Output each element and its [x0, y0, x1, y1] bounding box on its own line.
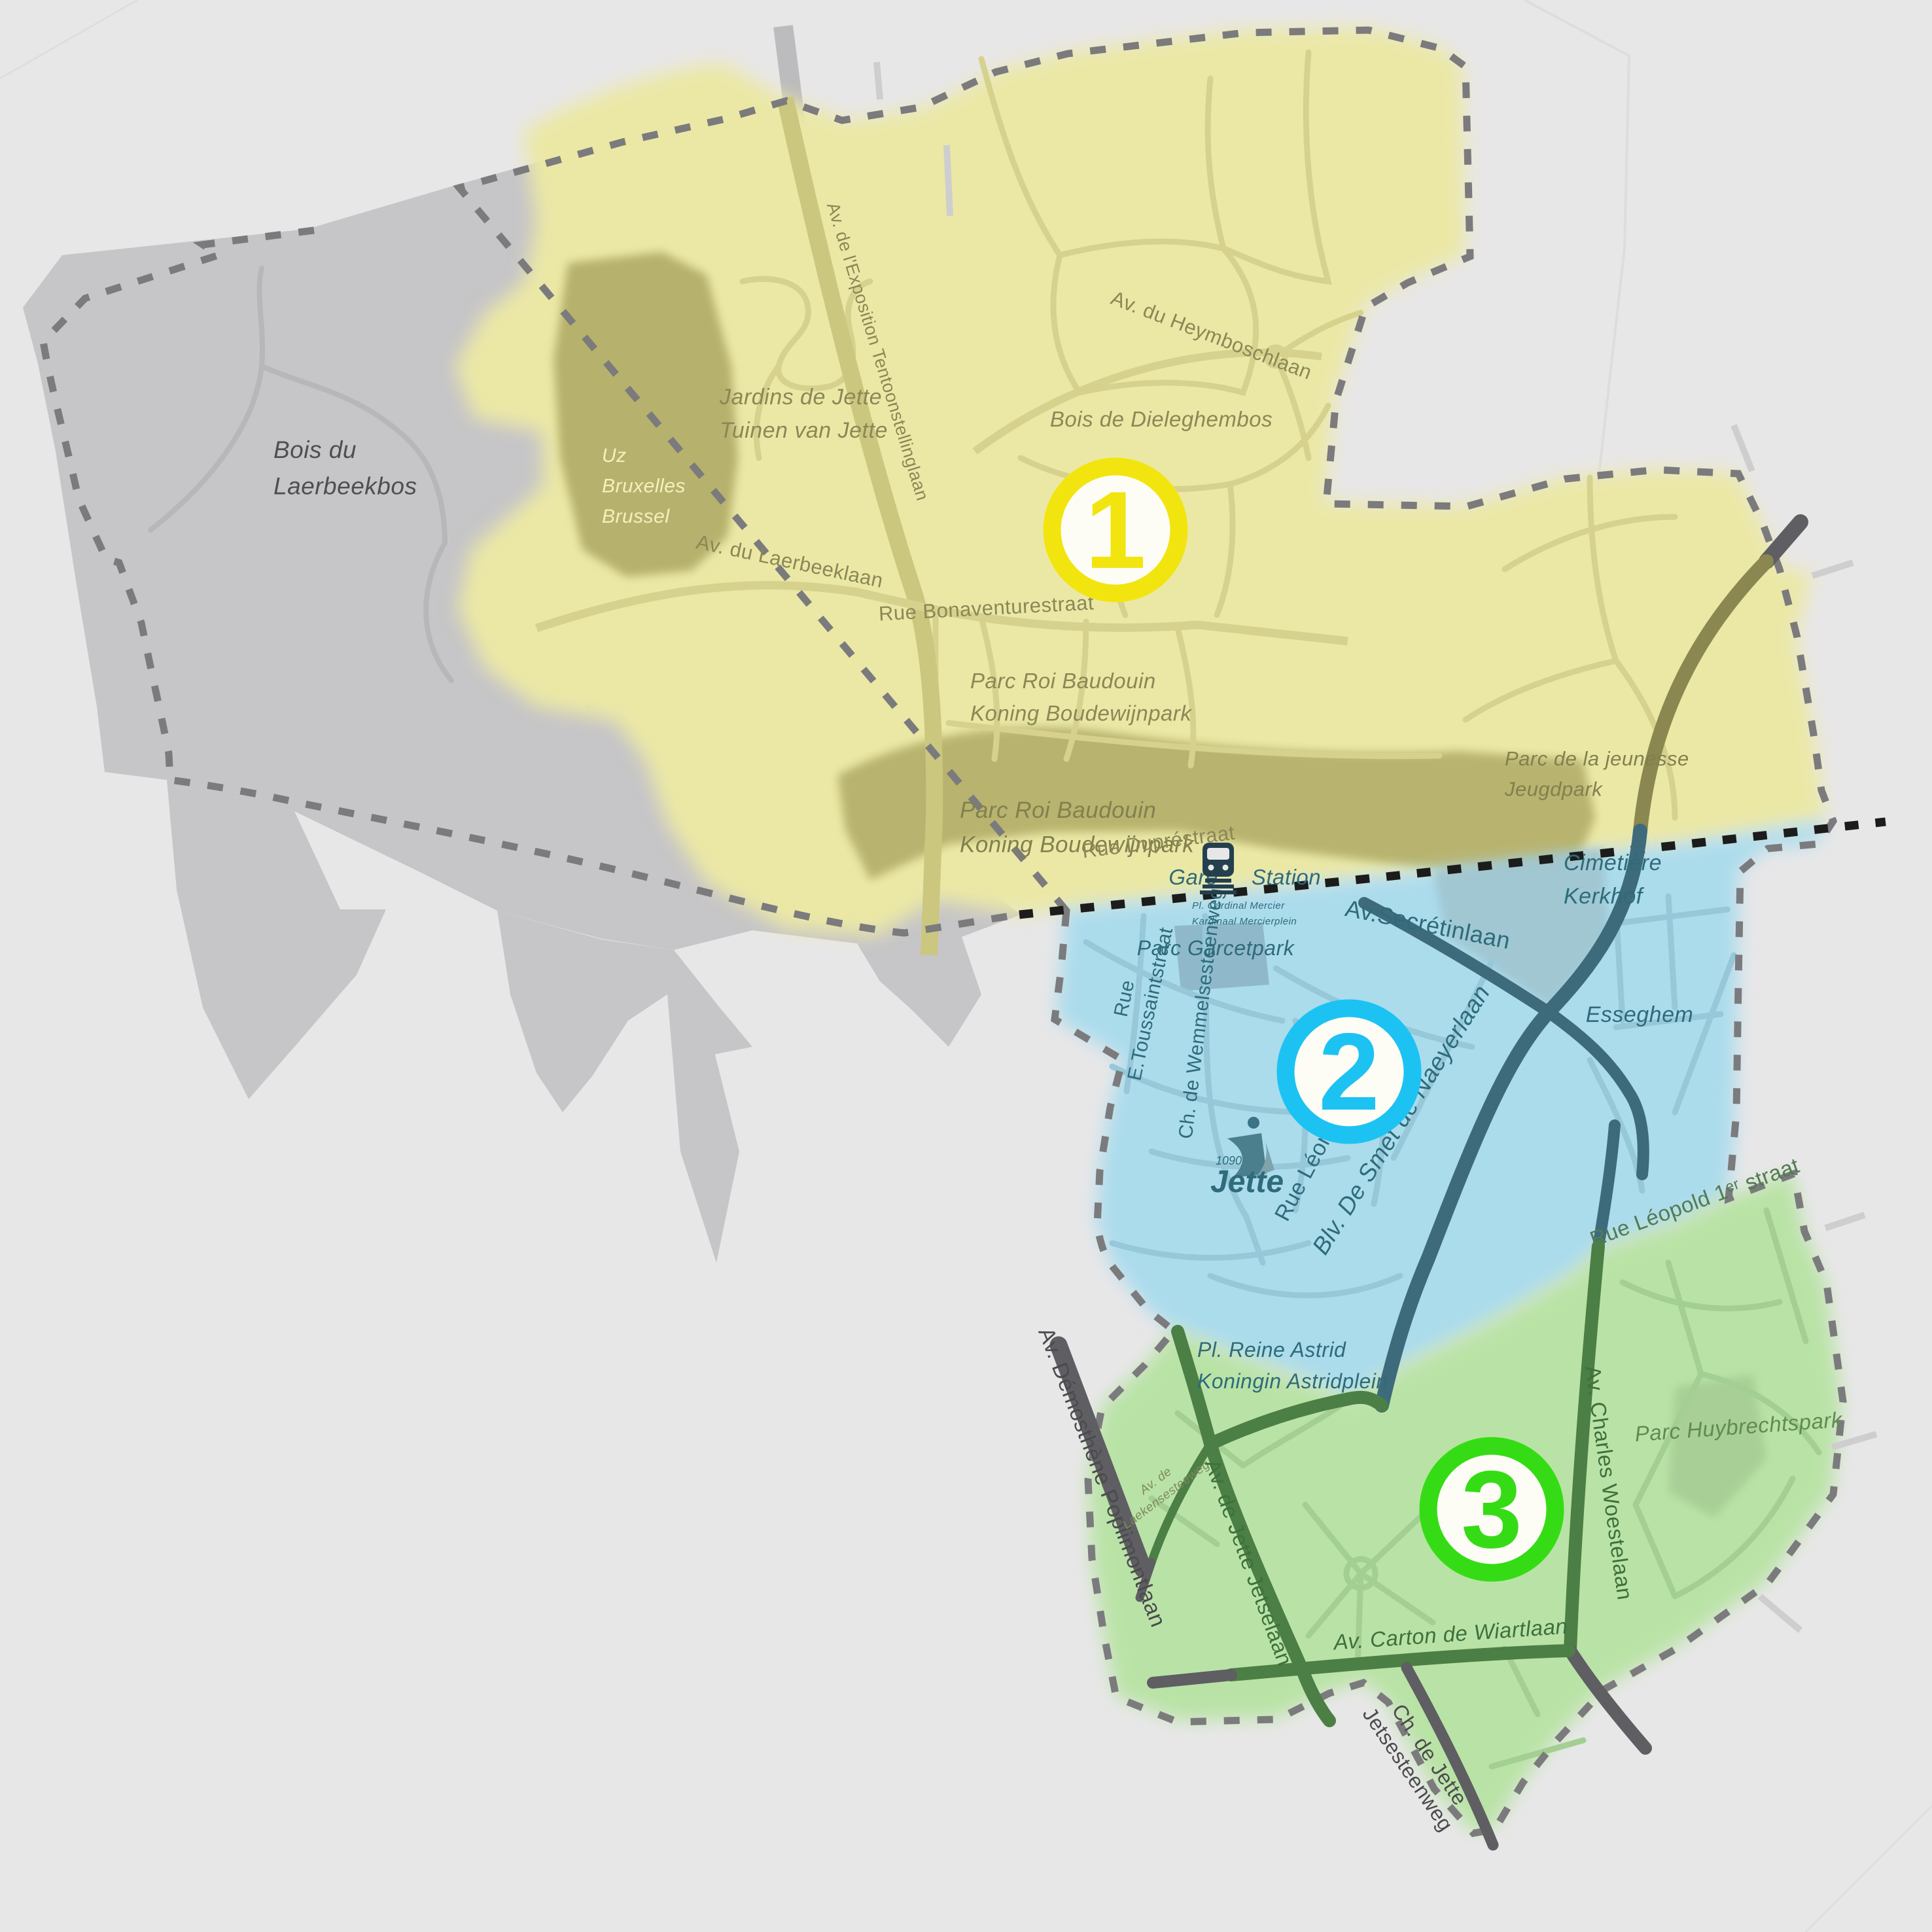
svg-text:Bois de Dieleghembos: Bois de Dieleghembos [1050, 407, 1273, 431]
jette-logo-name: Jette [1210, 1165, 1284, 1199]
label-esseghem: Esseghem [1586, 1002, 1694, 1027]
road-carton-outside [1153, 1675, 1231, 1683]
badge-number-zone-3: 3 [1461, 1448, 1522, 1571]
svg-text:Station: Station [1252, 865, 1321, 889]
label-bois-de-dieleghembos: Bois de Dieleghembos [1050, 407, 1273, 431]
badge-number-zone-2: 2 [1318, 1010, 1379, 1133]
train-icon [1200, 843, 1237, 892]
badge-number-zone-1: 1 [1085, 468, 1146, 591]
svg-text:Esseghem: Esseghem [1586, 1002, 1694, 1027]
map-canvas: Bois duLaerbeekbosUzBruxellesBrusselJard… [0, 0, 1932, 1932]
badge-zone-2: 2 [1286, 1008, 1413, 1135]
badge-zone-1: 1 [1052, 466, 1179, 593]
label-station: Station [1252, 865, 1321, 889]
jette-zones-map: Bois duLaerbeekbosUzBruxellesBrusselJard… [0, 0, 1932, 1932]
uz-hospital-area [553, 252, 738, 577]
badge-zone-3: 3 [1428, 1446, 1555, 1573]
jette-logo-dot [1248, 1117, 1259, 1129]
